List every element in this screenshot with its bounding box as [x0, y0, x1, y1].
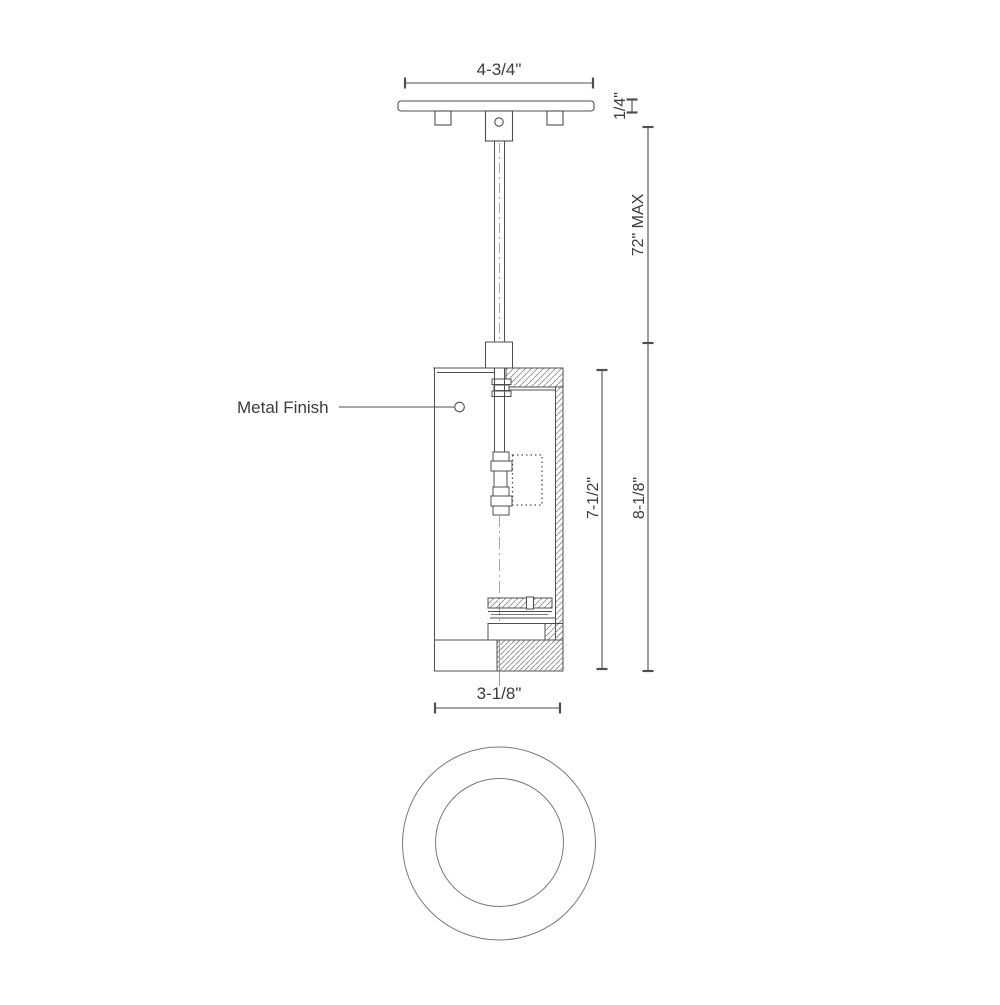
canopy	[398, 101, 594, 141]
shade-diameter-value: 3-1/8"	[477, 684, 522, 703]
bottom-base-hatched	[497, 640, 563, 671]
suspension-max-value: 72" MAX	[630, 193, 647, 256]
canopy-screw-hole	[495, 118, 503, 126]
bottom-view-outer-circle	[403, 747, 596, 940]
right-wall-hatched	[556, 387, 564, 640]
canopy-tab-right	[547, 111, 563, 125]
rod-connector-block	[486, 342, 513, 368]
dimension-shade-height: 7-1/2"	[585, 370, 608, 669]
socket-plate-gap	[527, 597, 534, 609]
bottom-view-inner-circle	[436, 779, 564, 907]
lamp-phantom-outline	[513, 455, 543, 505]
socket-plate-hatched	[488, 598, 552, 608]
shade-height-value: 7-1/2"	[585, 477, 602, 519]
pendant-light-drawing: Metal Finish 4-3/4" 1/4" 72" MAX 8-1/8" …	[0, 0, 1000, 1000]
canopy-tab-left	[435, 111, 451, 125]
metal-finish-label: Metal Finish	[237, 398, 329, 417]
lower-trim-wedge	[545, 624, 563, 641]
fixture-height-value: 8-1/8"	[631, 477, 648, 519]
dimension-shade-diameter: 3-1/8"	[435, 684, 560, 714]
canopy-thickness-value: 1/4"	[612, 92, 629, 120]
top-cap-hatched	[506, 368, 563, 387]
suspension-rod	[486, 141, 513, 368]
metal-finish-callout: Metal Finish	[237, 398, 464, 417]
dimension-suspension-and-overall: 72" MAX 8-1/8"	[630, 127, 654, 671]
metal-finish-leader-dot	[455, 402, 465, 412]
canopy-plate	[398, 101, 594, 111]
dimension-canopy-width: 4-3/4"	[405, 60, 593, 89]
lower-step-block	[488, 624, 545, 641]
technical-drawing-page: Metal Finish 4-3/4" 1/4" 72" MAX 8-1/8" …	[0, 0, 1000, 1000]
dimension-canopy-thickness: 1/4"	[612, 92, 638, 120]
bottom-view	[403, 747, 596, 940]
socket-hardware	[491, 452, 512, 515]
fixture-body	[433, 368, 564, 686]
canopy-width-value: 4-3/4"	[477, 60, 522, 79]
